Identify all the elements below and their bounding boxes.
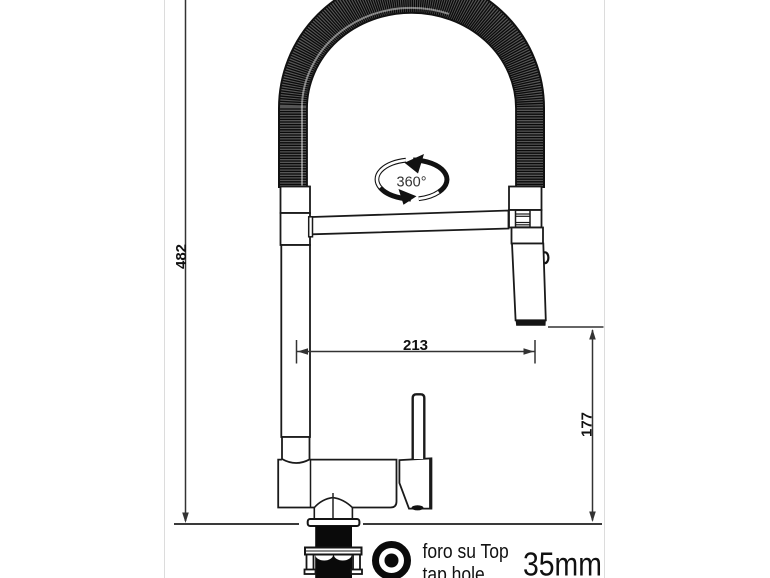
svg-text:tap hole: tap hole (423, 563, 485, 578)
svg-text:482: 482 (173, 244, 190, 269)
svg-text:360°: 360° (397, 175, 427, 191)
svg-text:213: 213 (403, 337, 428, 354)
svg-text:177: 177 (579, 412, 596, 437)
svg-text:foro su Top: foro su Top (423, 540, 509, 562)
svg-text:35mm: 35mm (523, 545, 602, 578)
